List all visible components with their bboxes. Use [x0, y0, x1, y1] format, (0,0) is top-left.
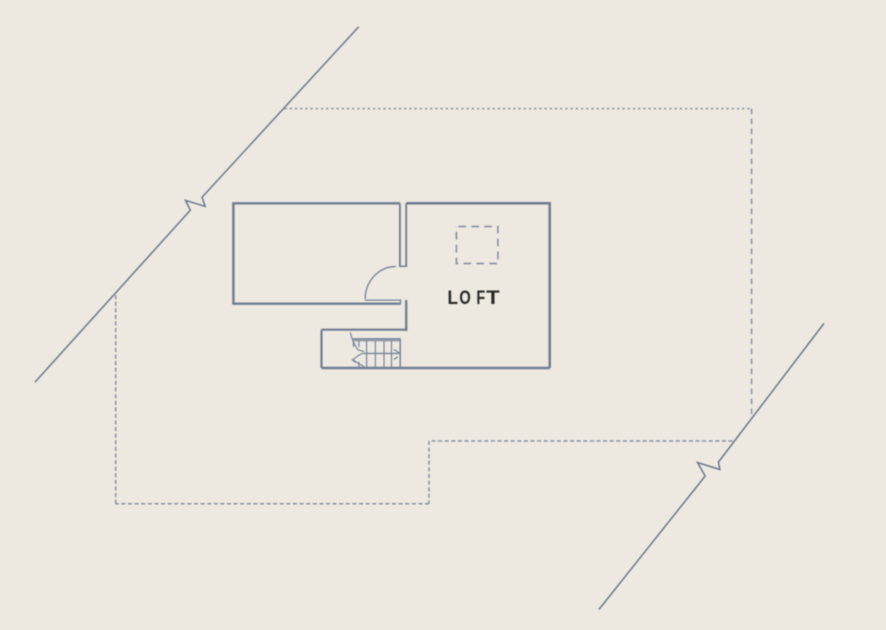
svg-text:F: F	[476, 286, 485, 309]
svg-text:L: L	[448, 286, 458, 308]
svg-text:O: O	[459, 286, 470, 309]
svg-text:T: T	[486, 287, 500, 309]
